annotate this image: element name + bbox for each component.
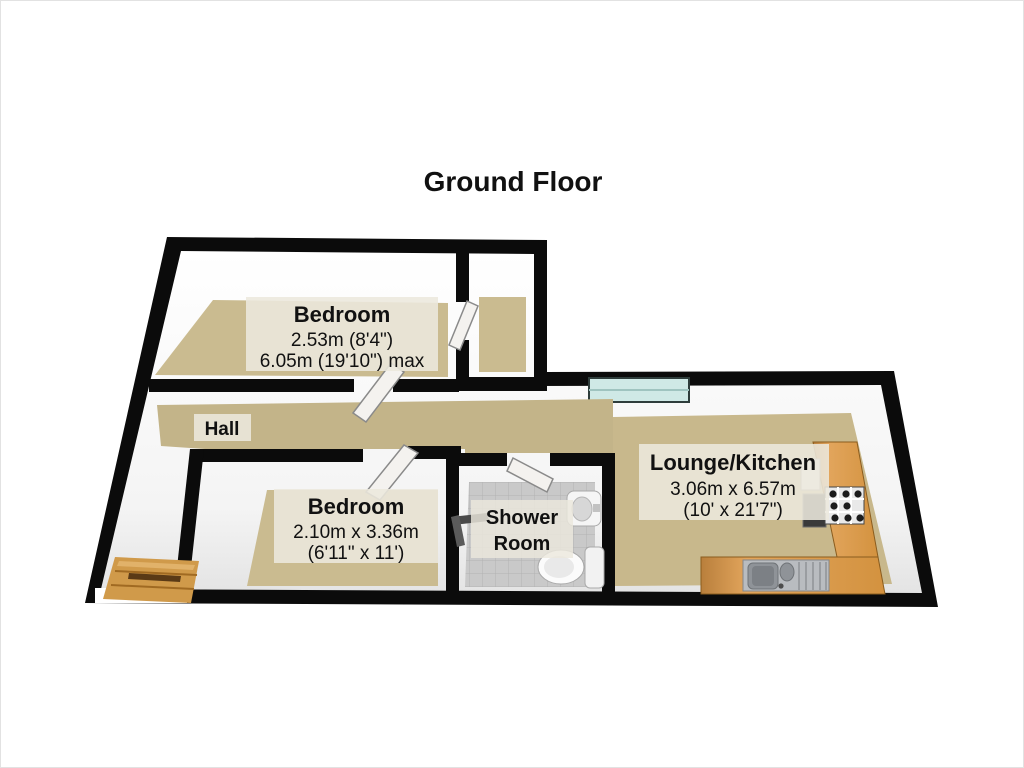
bedroom-bottom-name: Bedroom <box>308 494 405 519</box>
wall-closet-left-top <box>456 251 469 302</box>
label-bedroom-top: Bedroom 2.53m (8'4") 6.05m (19'10") max <box>246 297 438 372</box>
label-lounge-kitchen: Lounge/Kitchen 3.06m x 6.57m (10' x 21'7… <box>639 444 829 521</box>
wall-bedroomtop-hall-right <box>393 379 459 392</box>
kitchen-sink <box>743 560 829 591</box>
page-title: Ground Floor <box>424 166 603 197</box>
bedroom-top-dim2: 6.05m (19'10") max <box>260 351 425 372</box>
wall-shower-top-left <box>459 453 507 466</box>
shower-room-name-2: Room <box>494 533 551 555</box>
toilet-cistern <box>585 547 604 588</box>
lounge-kitchen-dim2: (10' x 21'7") <box>683 500 783 521</box>
shower-room-name-1: Shower <box>486 507 558 529</box>
label-bedroom-bottom: Bedroom 2.10m x 3.36m (6'11" x 11') <box>274 489 438 564</box>
lounge-kitchen-name: Lounge/Kitchen <box>650 450 816 475</box>
basin-tap <box>593 504 600 512</box>
bedroom-bottom-dim1: 2.10m x 3.36m <box>293 522 419 543</box>
hall-name: Hall <box>205 419 240 440</box>
sink-bowl-inner <box>752 566 774 586</box>
wall-bedroomtop-hall-left <box>149 379 354 392</box>
hob <box>825 487 864 524</box>
bedroom-top-name: Bedroom <box>294 302 391 327</box>
bedroom-bottom-dim2: (6'11" x 11') <box>308 543 405 564</box>
label-hall: Hall <box>194 414 251 441</box>
toilet-seat <box>544 556 574 578</box>
sink-tap <box>778 583 783 588</box>
lounge-kitchen-dim1: 3.06m x 6.57m <box>670 479 796 500</box>
label-shower-room: Shower Room <box>471 500 573 558</box>
bedroom-top-dim1: 2.53m (8'4") <box>291 330 393 351</box>
floorplan-page: Ground Floor <box>0 0 1024 768</box>
wall-hall-bedroombottom <box>193 449 363 462</box>
wall-closet-bottom <box>456 377 547 391</box>
window <box>589 378 689 402</box>
closet-floor <box>479 297 526 372</box>
sink-bowl-small <box>780 563 794 581</box>
floorplan-drawing: Ground Floor <box>1 1 1023 767</box>
basin-bowl <box>572 497 592 521</box>
